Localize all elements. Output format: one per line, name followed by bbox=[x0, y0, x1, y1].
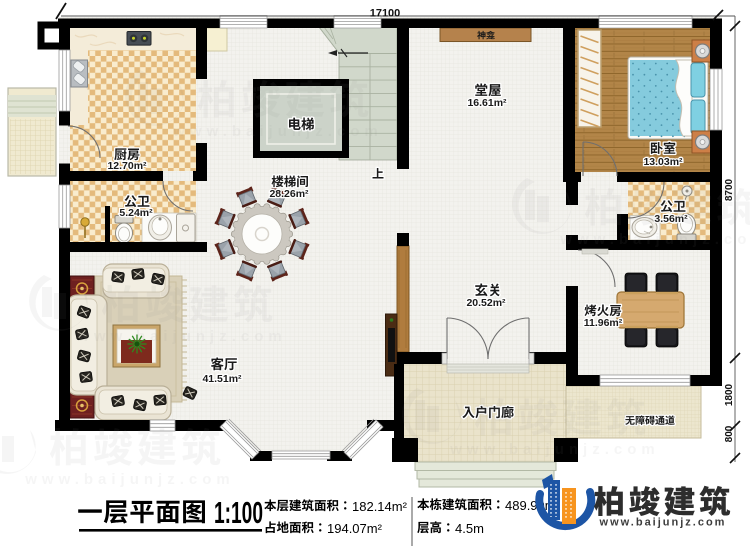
svg-text:11.96m²: 11.96m² bbox=[584, 317, 623, 329]
svg-text:1800: 1800 bbox=[724, 383, 735, 406]
svg-text:41.51m²: 41.51m² bbox=[202, 373, 242, 385]
svg-text:20.52m²: 20.52m² bbox=[466, 297, 506, 309]
svg-text:www.baijunjz.com: www.baijunjz.com bbox=[599, 517, 727, 529]
svg-text:4.5m: 4.5m bbox=[455, 521, 484, 536]
svg-text:12.70m²: 12.70m² bbox=[107, 160, 147, 172]
svg-text:194.07m²: 194.07m² bbox=[327, 521, 383, 536]
svg-text:800: 800 bbox=[724, 425, 735, 442]
svg-text:5.24m²: 5.24m² bbox=[119, 207, 153, 219]
svg-text:182.14m²: 182.14m² bbox=[352, 499, 408, 514]
svg-text:1:100: 1:100 bbox=[214, 495, 263, 530]
svg-text:17100: 17100 bbox=[370, 8, 401, 20]
svg-text:13.03m²: 13.03m² bbox=[643, 156, 683, 168]
svg-text:16.61m²: 16.61m² bbox=[467, 97, 507, 109]
svg-text:28.26m²: 28.26m² bbox=[269, 188, 309, 200]
